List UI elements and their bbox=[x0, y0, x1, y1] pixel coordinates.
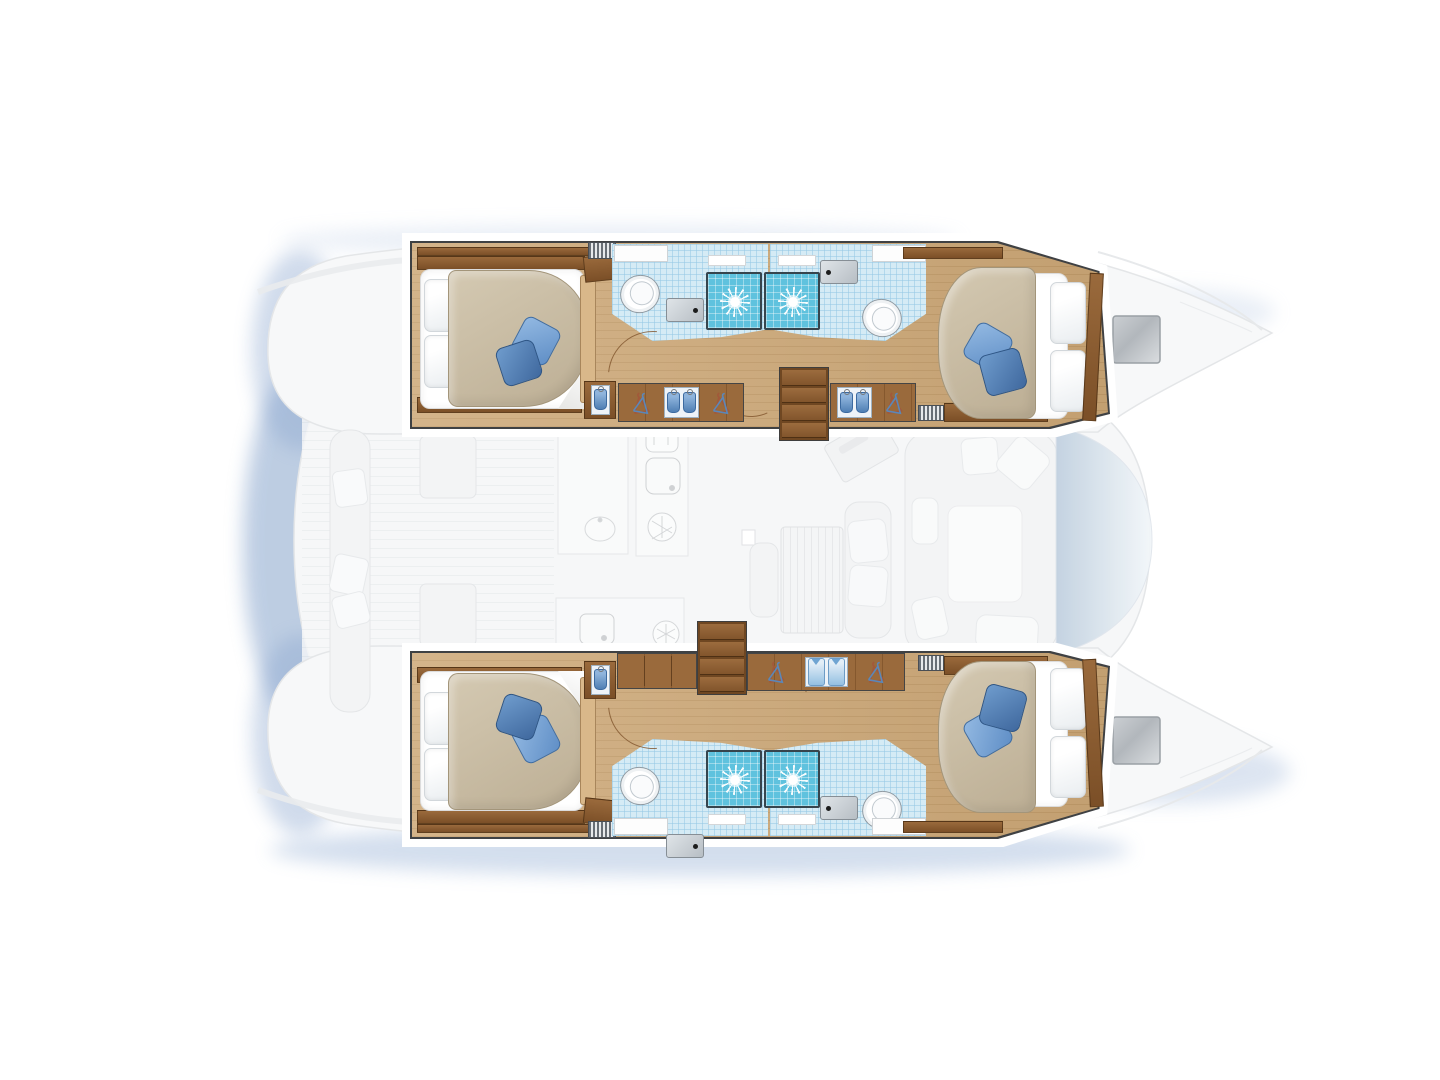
hanger-icon bbox=[761, 658, 791, 686]
stbd-fwd-cabin bbox=[900, 653, 1108, 837]
hanging-locker bbox=[747, 653, 905, 691]
headboard-cabinet bbox=[417, 256, 585, 270]
shirt-shelf bbox=[805, 657, 848, 688]
pillow bbox=[1050, 668, 1086, 730]
towel-icon bbox=[840, 392, 853, 413]
drawer-locker bbox=[617, 653, 697, 689]
shower-rose-icon bbox=[778, 287, 808, 317]
vanity-counter bbox=[614, 818, 668, 835]
towel-icon bbox=[856, 392, 869, 413]
sink-icon bbox=[666, 834, 704, 858]
shirt-icon bbox=[808, 658, 825, 686]
shower-window bbox=[778, 255, 816, 266]
shower-rose-icon bbox=[778, 765, 808, 795]
saloon-usofa-ghost bbox=[905, 432, 1057, 654]
shower-window bbox=[778, 814, 816, 825]
companionway-steps bbox=[779, 367, 829, 441]
starboard-hull-interior bbox=[412, 653, 1108, 837]
hanger-icon bbox=[861, 658, 891, 686]
snowflake-icon bbox=[648, 513, 676, 541]
saloon-bench-ghost bbox=[750, 543, 778, 617]
hanging-locker bbox=[618, 383, 744, 422]
pillow bbox=[1050, 350, 1086, 412]
sink-icon bbox=[820, 260, 858, 284]
deck-hatch-icon bbox=[1113, 717, 1160, 764]
fwd-top-shelf bbox=[903, 247, 1003, 259]
towel-shelf bbox=[664, 387, 699, 419]
headboard-cabinet bbox=[417, 810, 585, 824]
shower-stall bbox=[764, 272, 820, 330]
hanger-icon bbox=[626, 389, 656, 417]
vanity-counter bbox=[614, 245, 668, 262]
shirt-icon bbox=[828, 658, 845, 686]
shower-rose-icon bbox=[720, 765, 750, 795]
towel-cabinet bbox=[584, 661, 616, 699]
shower-rose-icon bbox=[720, 287, 750, 317]
ghost-deck-layer bbox=[0, 0, 1440, 1080]
saloon-table-ghost bbox=[781, 527, 843, 633]
pillow bbox=[1050, 282, 1086, 344]
port-hull-interior bbox=[412, 243, 1108, 427]
companionway-steps bbox=[697, 621, 747, 695]
towel-icon bbox=[594, 389, 607, 410]
floorplan-canvas bbox=[0, 0, 1440, 1080]
shower-stall bbox=[706, 750, 762, 808]
sink-icon bbox=[820, 796, 858, 820]
shower-stall bbox=[706, 272, 762, 330]
towel-cabinet bbox=[584, 381, 616, 419]
shower-stall bbox=[764, 750, 820, 808]
galley-sink-icon bbox=[646, 458, 680, 494]
galley-sink-icon-2 bbox=[580, 614, 614, 644]
shower-window bbox=[708, 814, 746, 825]
hanger-icon bbox=[706, 389, 736, 417]
mast-foot bbox=[742, 530, 755, 545]
towel-shelf bbox=[837, 387, 872, 419]
port-fwd-cabin bbox=[900, 243, 1108, 427]
fwd-top-shelf bbox=[903, 821, 1003, 833]
towel-icon bbox=[683, 392, 696, 413]
saloon-ghost bbox=[556, 415, 1152, 654]
towel-icon bbox=[594, 669, 607, 690]
sink-icon bbox=[666, 298, 704, 322]
pillow bbox=[1050, 736, 1086, 798]
shower-window bbox=[708, 255, 746, 266]
deck-hatch-icon bbox=[1113, 316, 1160, 363]
towel-icon bbox=[667, 392, 680, 413]
galley-sink-oval-icon bbox=[585, 517, 615, 541]
